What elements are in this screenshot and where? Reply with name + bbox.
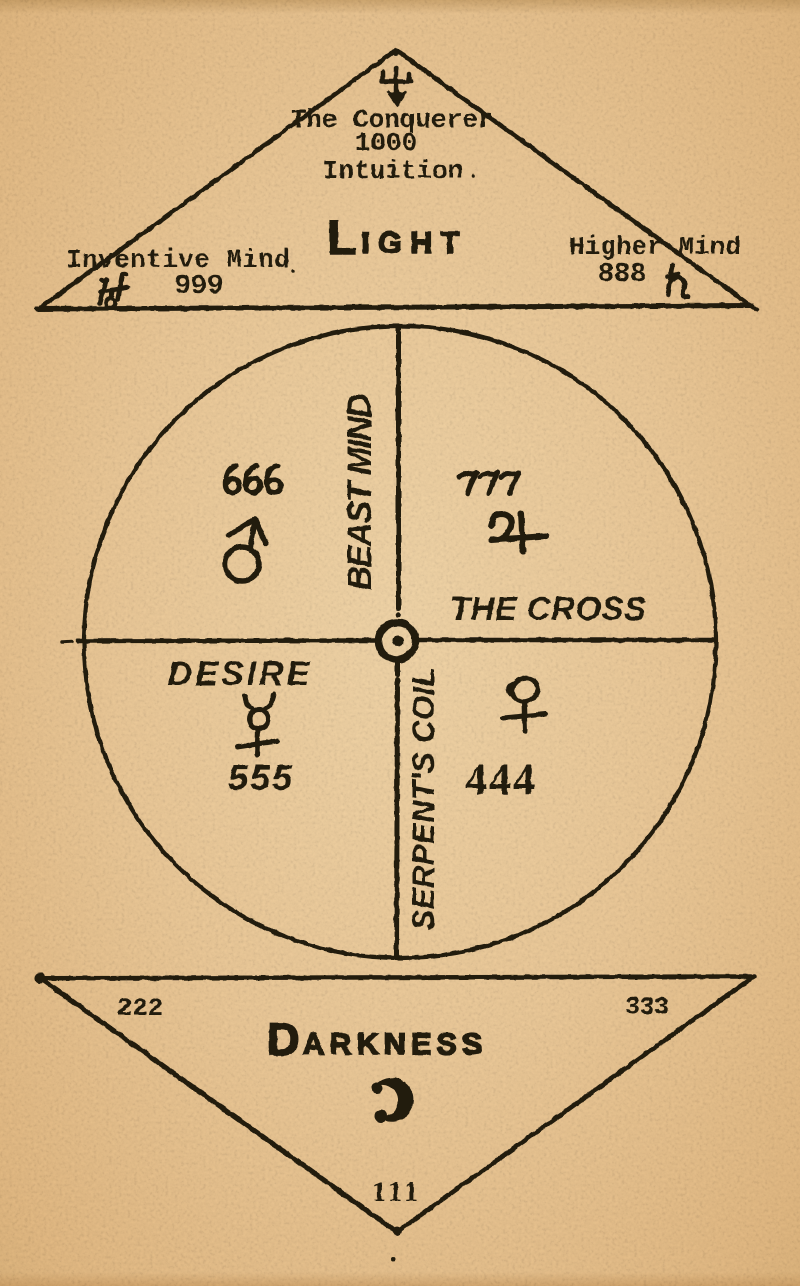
- svg-text:999: 999: [175, 272, 224, 302]
- svg-text:888: 888: [598, 260, 647, 290]
- svg-text:555: 555: [228, 757, 294, 798]
- svg-text:111: 111: [372, 1177, 418, 1208]
- svg-text:Intuition: Intuition: [323, 156, 463, 186]
- svg-text:222: 222: [117, 994, 163, 1023]
- svg-text:Inventive Mind: Inventive Mind: [66, 245, 290, 275]
- svg-text:SERPENT'S COIL: SERPENT'S COIL: [405, 668, 441, 931]
- svg-text:BEAST MIND: BEAST MIND: [341, 394, 379, 591]
- svg-text:THE CROSS: THE CROSS: [450, 590, 646, 627]
- svg-text:444: 444: [465, 755, 537, 804]
- svg-text:DESIRE: DESIRE: [168, 655, 313, 693]
- svg-text:1000: 1000: [355, 128, 417, 158]
- svg-text:Higher Mind: Higher Mind: [569, 232, 741, 262]
- svg-text:333: 333: [625, 993, 669, 1022]
